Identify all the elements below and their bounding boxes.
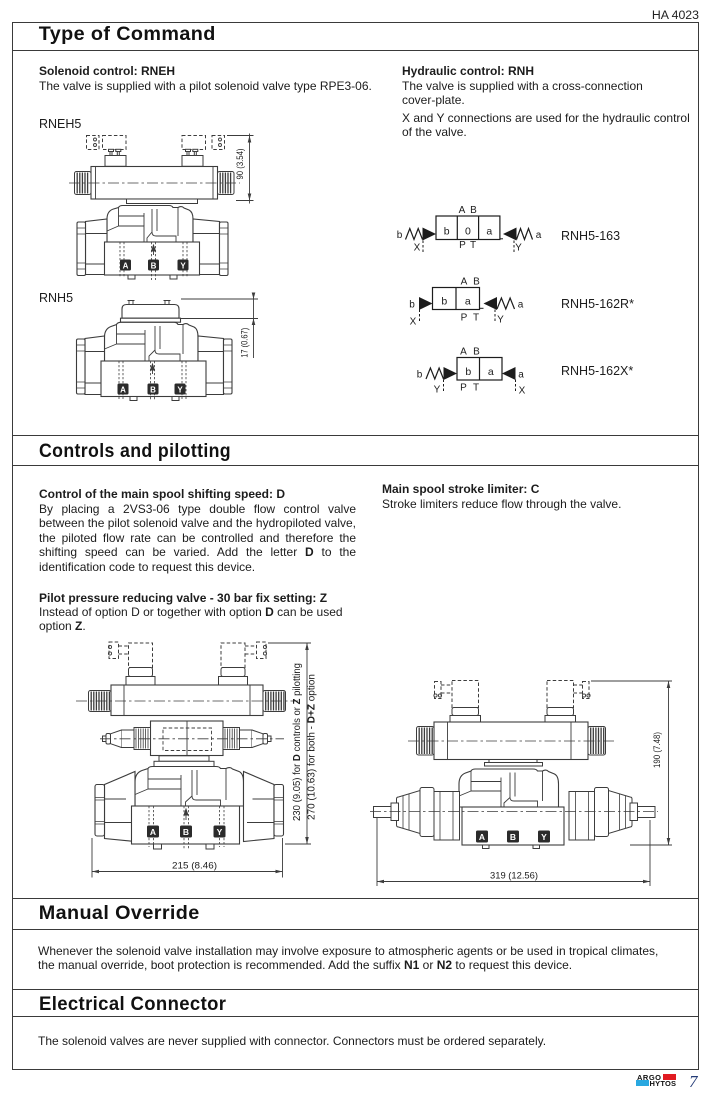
svg-text:a: a (488, 366, 494, 378)
svg-text:B: B (473, 277, 480, 288)
svg-text:a: a (486, 226, 492, 238)
svg-text:A: A (460, 347, 467, 358)
svg-text:190 (7.48): 190 (7.48) (652, 732, 662, 768)
svg-text:A: A (123, 261, 129, 270)
svg-text:X: X (414, 243, 421, 254)
svg-text:b: b (465, 366, 471, 378)
svg-text:B: B (151, 261, 157, 270)
svg-text:Y: Y (434, 385, 441, 396)
svg-text:b: b (417, 370, 423, 381)
svg-text:90 (3.54): 90 (3.54) (235, 149, 245, 180)
svg-text:Y: Y (217, 827, 223, 837)
svg-text:T: T (473, 383, 479, 394)
svg-text:319 (12.56): 319 (12.56) (490, 870, 538, 881)
svg-text:0: 0 (465, 226, 471, 238)
svg-text:Y: Y (177, 385, 183, 394)
svg-text:X: X (410, 317, 417, 328)
svg-text:a: a (465, 296, 471, 308)
svg-text:a: a (518, 300, 524, 311)
svg-text:a: a (536, 230, 542, 241)
svg-text:P: P (461, 313, 468, 324)
svg-text:A: A (459, 205, 466, 216)
svg-text:270 (10.63) for both - D+Z opt: 270 (10.63) for both - D+Z option (307, 674, 318, 820)
svg-text:17 (0.67): 17 (0.67) (240, 328, 250, 358)
svg-text:B: B (150, 385, 156, 394)
svg-text:Y: Y (541, 832, 547, 842)
svg-text:P: P (460, 383, 467, 394)
svg-text:B: B (183, 827, 189, 837)
svg-text:B: B (473, 347, 480, 358)
svg-text:T: T (470, 240, 476, 251)
svg-text:A: A (461, 277, 468, 288)
svg-text:A: A (120, 385, 126, 394)
svg-text:X: X (519, 386, 526, 397)
svg-text:A: A (150, 827, 156, 837)
svg-text:Y: Y (180, 261, 186, 270)
svg-text:B: B (510, 832, 516, 842)
svg-text:215 (8.46): 215 (8.46) (172, 860, 217, 871)
svg-text:Y: Y (515, 243, 522, 254)
svg-text:P: P (459, 240, 466, 251)
svg-text:230 (9.05) for D controls or Z: 230 (9.05) for D controls or Z pilotting (292, 663, 303, 821)
svg-text:Y: Y (497, 315, 504, 326)
svg-text:B: B (470, 205, 477, 216)
svg-text:b: b (441, 296, 447, 308)
svg-text:T: T (473, 313, 479, 324)
svg-text:a: a (518, 370, 524, 381)
svg-text:A: A (479, 832, 485, 842)
svg-text:b: b (444, 226, 450, 238)
svg-text:b: b (397, 230, 403, 241)
svg-text:b: b (409, 300, 415, 311)
